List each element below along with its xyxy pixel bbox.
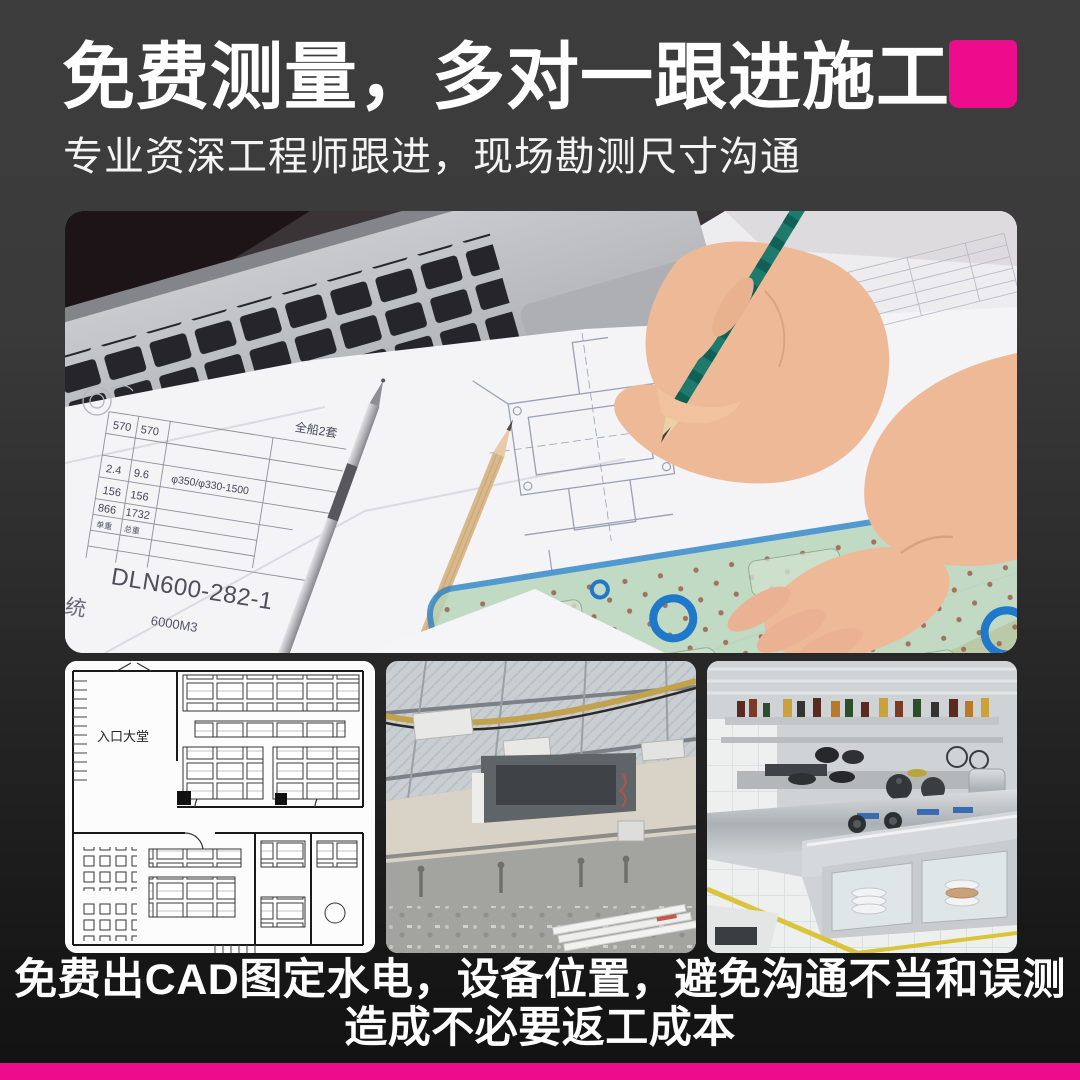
caption: 免费出CAD图定水电，设备位置，避免沟通不当和误测 造成不必要返工成本: [0, 956, 1080, 1052]
subtitle: 专业资深工程师跟进，现场勘测尺寸沟通: [63, 124, 801, 182]
accent-bottom-bar: [0, 1063, 1080, 1080]
table-cell: 2.4: [105, 463, 122, 477]
caption-line-2: 造成不必要返工成本: [0, 1004, 1080, 1052]
caption-line-1: 免费出CAD图定水电，设备位置，避免沟通不当和误测: [0, 956, 1080, 1004]
page-title: 免费测量，多对一跟进施工: [62, 18, 950, 124]
kitchen-illustration: [707, 661, 1017, 953]
gallery-photo-kitchen: [707, 661, 1017, 953]
floor-plan-illustration: 入口大堂: [65, 661, 375, 953]
table-cell: 9.6: [133, 467, 150, 481]
wall-box: [618, 821, 644, 841]
gallery-photo-construction: [386, 661, 696, 953]
construction-illustration: [386, 661, 696, 953]
hero-photo: 570 570 2.4 9.6 φ350/φ330-1500 156 156 8…: [65, 211, 1017, 653]
accent-square: [949, 40, 1017, 108]
hero-illustration: 570 570 2.4 9.6 φ350/φ330-1500 156 156 8…: [65, 211, 1017, 653]
promo-poster: 免费测量，多对一跟进施工 专业资深工程师跟进，现场勘测尺寸沟通: [0, 0, 1080, 1080]
gallery-photo-floor-plan: 入口大堂: [65, 661, 375, 953]
sink-corner: [707, 905, 779, 953]
photo-gallery: 入口大堂: [65, 661, 1017, 953]
plan-label: 入口大堂: [97, 729, 149, 744]
exhaust-hood: [472, 753, 636, 823]
hanging-rail: [721, 737, 1003, 743]
